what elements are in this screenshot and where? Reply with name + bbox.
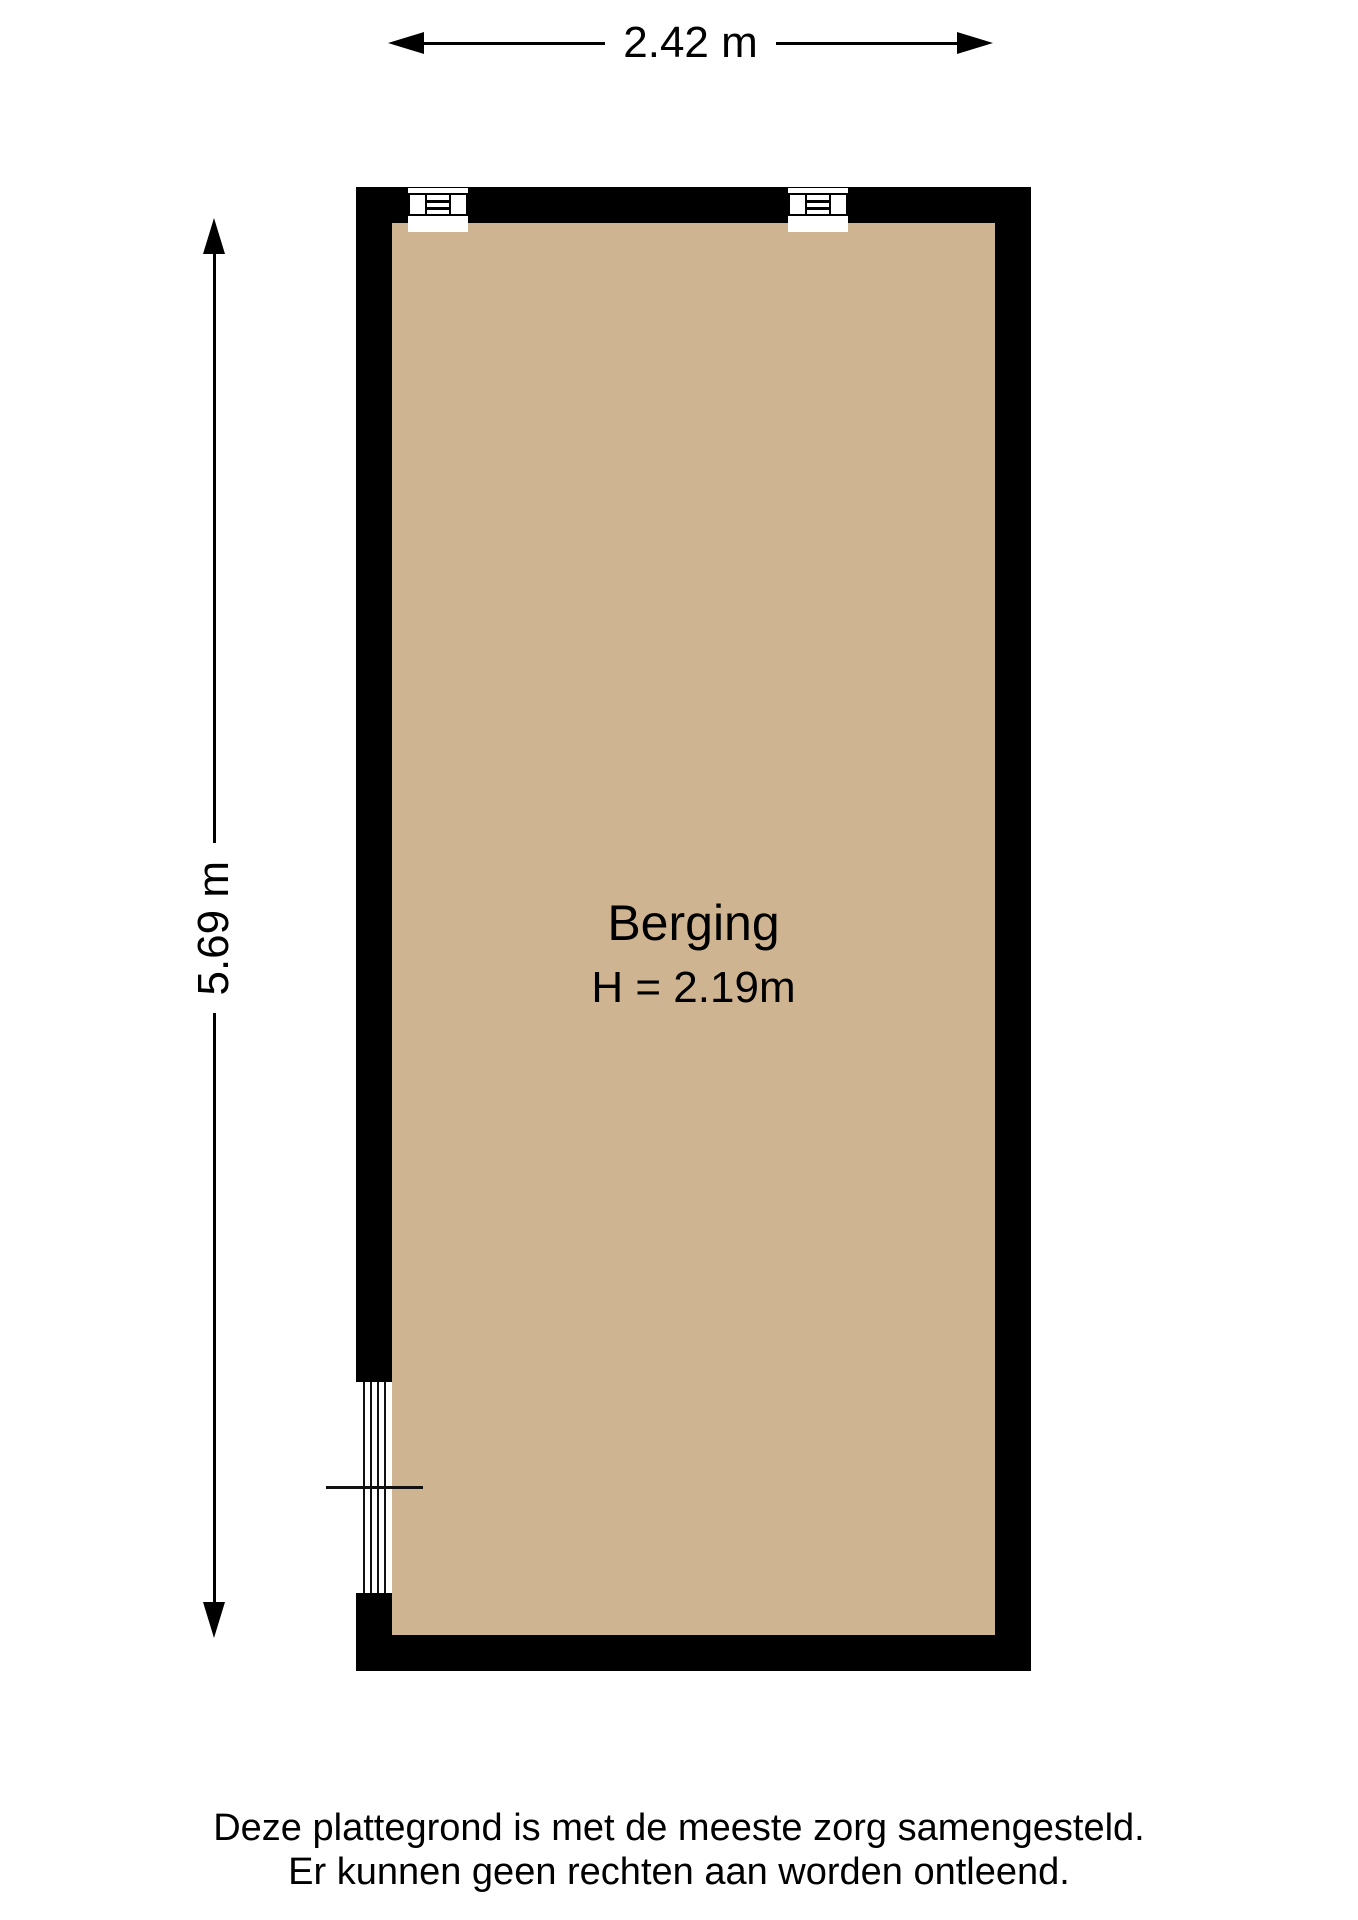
height-dimension: 5.69 m [195, 218, 233, 1638]
dimension-line [213, 254, 216, 843]
arrow-right-icon [957, 32, 993, 54]
wall-left-stub [356, 1593, 392, 1671]
grille-line [807, 207, 829, 210]
grille-line [427, 207, 449, 210]
window-sill [788, 223, 848, 232]
dimension-line [776, 42, 957, 45]
dimension-line [213, 1013, 216, 1602]
floorplan-canvas: 2.42 m 5.69 m Berging [0, 0, 1358, 1920]
wall-bottom [356, 1635, 1031, 1671]
room-ceiling-height: H = 2.19m [392, 963, 995, 1014]
arrow-down-icon [203, 1602, 225, 1638]
grille-line [427, 200, 449, 203]
width-dimension-label: 2.42 m [623, 18, 758, 68]
window-grille-icon [805, 193, 831, 216]
window-sill [408, 223, 468, 232]
door-threshold-line [326, 1486, 423, 1489]
grille-line [807, 200, 829, 203]
width-dimension: 2.42 m [388, 20, 993, 66]
wall-left-upper [356, 187, 392, 1382]
disclaimer: Deze plattegrond is met de meeste zorg s… [0, 1806, 1358, 1894]
dimension-line [424, 42, 605, 45]
window-grille-icon [425, 193, 451, 216]
disclaimer-line-1: Deze plattegrond is met de meeste zorg s… [0, 1806, 1358, 1850]
room-name: Berging [392, 893, 995, 953]
height-dimension-label: 5.69 m [189, 861, 239, 996]
arrow-up-icon [203, 218, 225, 254]
arrow-left-icon [388, 32, 424, 54]
wall-right [995, 187, 1031, 1671]
disclaimer-line-2: Er kunnen geen rechten aan worden ontlee… [0, 1850, 1358, 1894]
room-label: Berging H = 2.19m [392, 893, 995, 1014]
